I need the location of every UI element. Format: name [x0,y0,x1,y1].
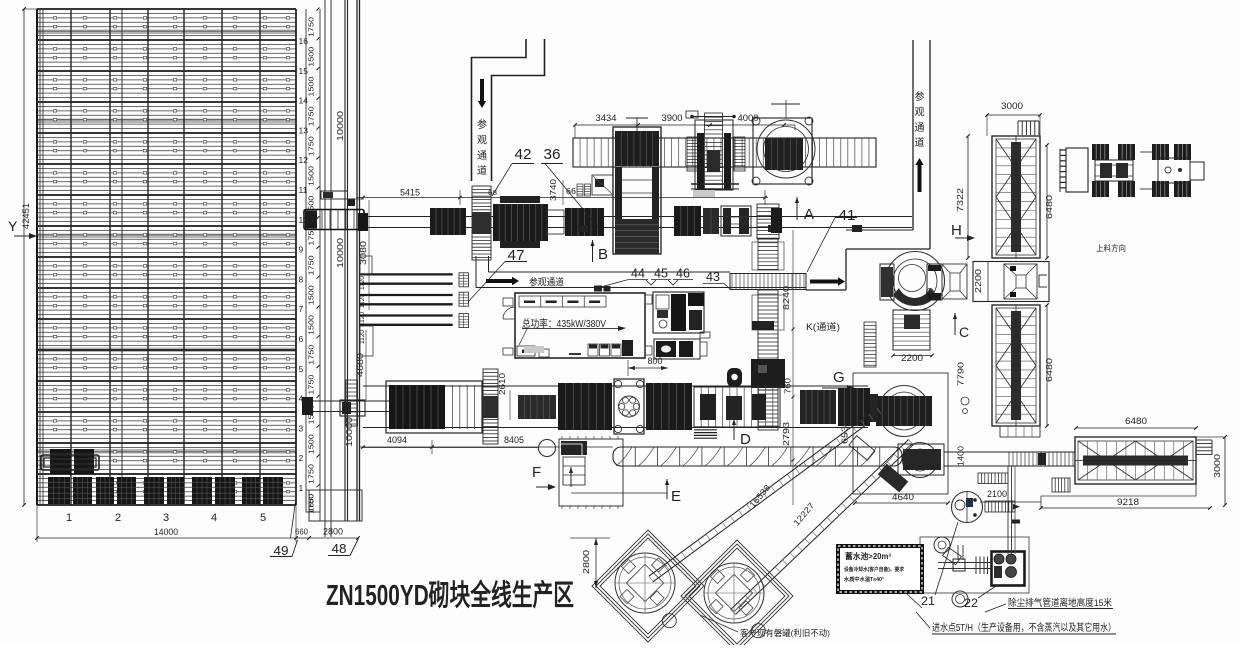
svg-text:66: 66 [566,187,577,196]
svg-text:A: A [804,206,814,223]
svg-text:参: 参 [477,118,487,131]
svg-text:14000: 14000 [154,527,178,538]
svg-text:上料方向: 上料方向 [1096,243,1126,253]
svg-text:6480: 6480 [1044,195,1054,219]
svg-text:3000: 3000 [1212,454,1222,478]
svg-text:1750: 1750 [307,464,316,484]
svg-text:蓄水池>20m³: 蓄水池>20m³ [845,551,891,561]
svg-text:D: D [740,431,751,448]
svg-text:1500: 1500 [307,285,316,305]
svg-text:总功率：435kW/380V: 总功率：435kW/380V [522,317,606,330]
svg-text:9: 9 [299,245,304,255]
svg-text:7: 7 [299,304,304,314]
svg-text:8: 8 [299,274,304,284]
svg-text:F: F [532,464,541,481]
svg-text:5: 5 [260,512,266,524]
svg-text:G: G [833,369,845,386]
svg-text:800: 800 [648,356,663,366]
svg-text:水质中水温T≤40°: 水质中水温T≤40° [843,576,884,583]
svg-text:道: 道 [477,164,487,177]
svg-text:除尘排气管道离地高度15米: 除尘排气管道离地高度15米 [1008,597,1112,609]
svg-text:45: 45 [654,266,668,281]
svg-text:8405: 8405 [504,435,524,445]
svg-text:4000: 4000 [738,113,759,124]
svg-text:36: 36 [544,146,561,163]
svg-text:42: 42 [515,146,532,163]
svg-text:1400: 1400 [957,445,966,466]
svg-text:3740: 3740 [549,178,558,201]
svg-text:7322: 7322 [955,188,965,212]
svg-text:3: 3 [299,423,304,433]
svg-text:观: 观 [915,106,925,118]
svg-text:2793: 2793 [781,422,791,446]
svg-text:换模仪: 换模仪 [561,446,580,455]
svg-text:3434: 3434 [596,113,617,124]
svg-text:1750: 1750 [307,17,316,37]
svg-text:46: 46 [676,266,690,281]
svg-text:道: 道 [915,136,925,149]
svg-text:2610: 2610 [498,372,507,395]
svg-text:660: 660 [295,528,309,537]
svg-text:21: 21 [921,594,935,608]
svg-text:1750: 1750 [307,375,316,395]
svg-text:4094: 4094 [387,435,407,445]
svg-text:6480: 6480 [1044,358,1054,382]
svg-text:参: 参 [915,90,925,103]
svg-text:2: 2 [299,453,304,463]
svg-text:1500: 1500 [307,77,316,97]
svg-text:2: 2 [115,512,121,524]
svg-text:1750: 1750 [307,255,316,275]
svg-text:10000: 10000 [336,110,345,141]
svg-text:3000: 3000 [1001,101,1023,111]
svg-text:H: H [951,222,962,239]
svg-text:4: 4 [211,512,217,524]
svg-text:6480: 6480 [1125,416,1147,426]
svg-text:22: 22 [964,596,978,610]
svg-text:42451: 42451 [21,203,31,229]
svg-text:通: 通 [915,122,925,134]
svg-text:设备冷却水(客户自备)，要求: 设备冷却水(客户自备)，要求 [844,566,905,573]
svg-text:43: 43 [706,269,720,284]
svg-text:1750: 1750 [307,106,316,126]
svg-text:B: B [598,246,608,263]
svg-text:44: 44 [631,266,645,281]
svg-text:9218: 9218 [1117,497,1139,507]
svg-text:41: 41 [839,207,856,224]
svg-text:1750: 1750 [307,345,316,365]
svg-text:E: E [671,488,681,505]
svg-text:2200: 2200 [901,353,923,363]
svg-text:48: 48 [332,541,347,556]
svg-text:客户现有磐罐(利旧不动): 客户现有磐罐(利旧不动) [740,628,830,638]
svg-text:3900: 3900 [662,113,683,124]
svg-text:K(通道): K(通道) [806,321,840,332]
svg-text:5: 5 [299,364,304,374]
svg-text:观: 观 [477,134,487,146]
svg-text:Y: Y [8,218,18,234]
svg-text:7790: 7790 [956,362,966,386]
svg-text:参观通道: 参观通道 [529,277,564,289]
svg-text:C: C [959,324,969,340]
svg-text:49: 49 [274,543,289,558]
svg-text:进水点5T/H（生产设备用，不含蒸汽以及其它用水）: 进水点5T/H（生产设备用，不含蒸汽以及其它用水） [932,621,1116,634]
svg-text:8240: 8240 [782,285,791,310]
svg-text:2200: 2200 [973,269,983,293]
svg-text:1: 1 [299,483,304,493]
svg-text:1750: 1750 [307,136,316,156]
svg-text:10000: 10000 [336,237,345,268]
svg-text:2100: 2100 [987,489,1007,499]
svg-text:5415: 5415 [400,188,420,199]
svg-text:1500: 1500 [307,315,316,335]
svg-text:1500: 1500 [307,166,316,186]
svg-text:4640: 4640 [892,492,914,502]
svg-text:ZN1500YD砌块全线生产区: ZN1500YD砌块全线生产区 [326,578,574,612]
svg-text:6: 6 [299,334,304,344]
svg-text:1750: 1750 [307,226,316,246]
svg-text:1500: 1500 [307,47,316,67]
svg-text:1600: 1600 [307,494,316,512]
svg-text:通: 通 [477,150,487,162]
svg-text:2800: 2800 [323,527,343,537]
svg-text:2800: 2800 [581,550,591,574]
svg-text:1: 1 [66,512,72,524]
svg-text:3: 3 [163,512,169,524]
svg-text:1500: 1500 [307,434,316,454]
